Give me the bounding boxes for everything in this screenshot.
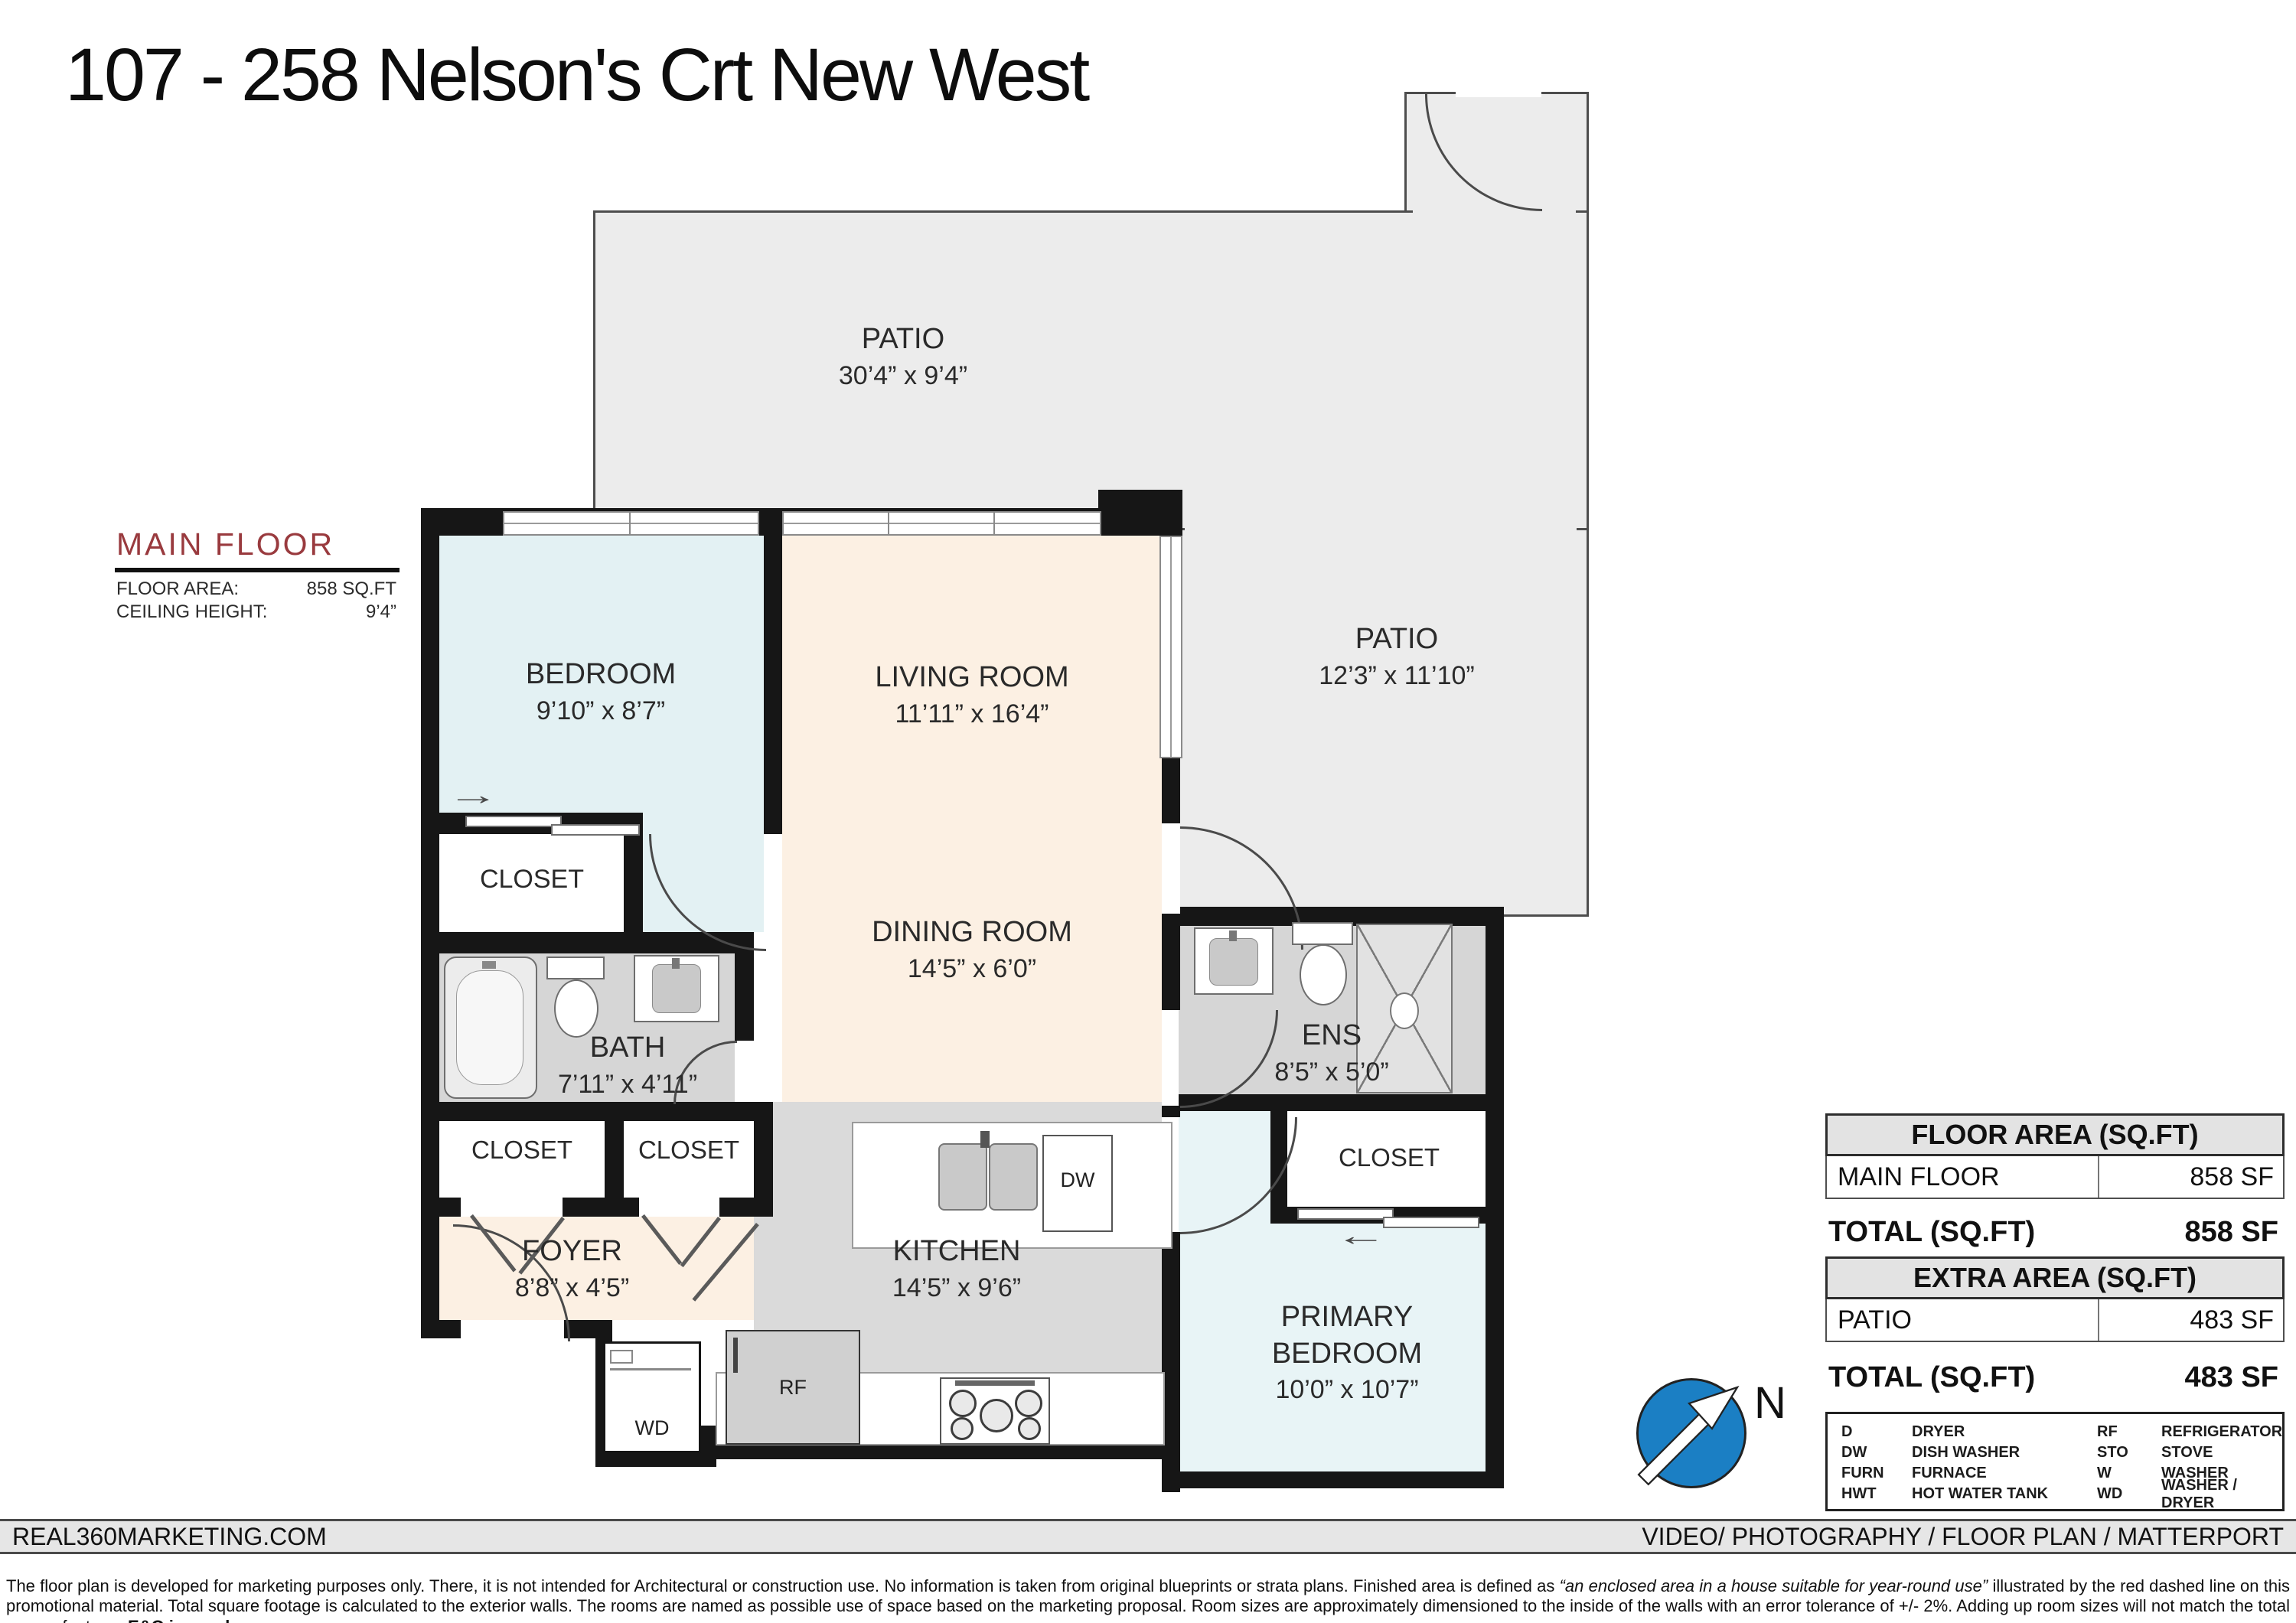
- room-name: PRIMARY: [1281, 1299, 1413, 1336]
- wall: [1179, 1471, 1504, 1488]
- room-name: LIVING ROOM: [875, 660, 1068, 696]
- legend-abbr: FURN: [1841, 1465, 1912, 1482]
- floor-total-row: TOTAL (SQ.FT) 858 SF: [1825, 1209, 2285, 1255]
- island-sink-faucet: [980, 1131, 990, 1148]
- room-name: BATH: [590, 1030, 666, 1067]
- toilet-tank-icon: [1292, 922, 1353, 945]
- bath-label: BATH 7’11” x 4’11”: [501, 1030, 754, 1103]
- total-label: TOTAL (SQ.FT): [1828, 1361, 2035, 1394]
- table-row: PATIO 483 SF: [1825, 1299, 2285, 1342]
- room-name: PATIO: [1355, 621, 1438, 658]
- room-name: KITCHEN: [893, 1234, 1021, 1270]
- toilet-bowl-icon: [554, 979, 598, 1038]
- legend-term: FURNACE: [1912, 1465, 2097, 1482]
- legend-abbr: W: [2097, 1465, 2161, 1482]
- bedroom-label: BEDROOM 9’10” x 8’7”: [459, 657, 742, 729]
- window-divider: [993, 513, 995, 534]
- sliding-door-panel: [551, 824, 640, 836]
- north-label: N: [1754, 1377, 1786, 1429]
- stove-burner: [949, 1390, 977, 1417]
- legend-abbr: HWT: [1841, 1485, 1912, 1503]
- window-divider: [629, 513, 631, 534]
- island-sink-basin: [938, 1143, 987, 1211]
- wall: [719, 1198, 754, 1217]
- toilet-tank-icon: [546, 957, 605, 979]
- sink-faucet: [672, 958, 680, 969]
- legend-abbr: STO: [2097, 1444, 2161, 1462]
- window-mullion: [504, 523, 758, 524]
- floor-area-table-header: FLOOR AREA (SQ.FT): [1825, 1113, 2285, 1156]
- total-value: 858 SF: [2184, 1216, 2278, 1249]
- floor-area-label: FLOOR AREA:: [116, 578, 239, 600]
- room-dims: 14’5” x 6’0”: [908, 951, 1036, 988]
- table-row: MAIN FLOOR 858 SF: [1825, 1156, 2285, 1199]
- row-label: MAIN FLOOR: [1827, 1156, 2099, 1198]
- living-room-window: [782, 511, 1101, 536]
- hall-closet-2-label: CLOSET: [612, 1134, 765, 1165]
- island-sink-basin: [989, 1143, 1038, 1211]
- row-value: 858 SF: [2099, 1156, 2283, 1198]
- sink-basin: [652, 964, 701, 1013]
- bedroom-window: [503, 511, 759, 536]
- patio-door-opening: [1162, 823, 1180, 914]
- refrigerator-icon: RF: [726, 1330, 860, 1445]
- total-value: 483 SF: [2184, 1361, 2278, 1394]
- dishwasher-label: DW: [1061, 1168, 1095, 1192]
- ensuite-sink-icon: [1194, 927, 1274, 995]
- floor-area-row: FLOOR AREA: 858 SQ.FT: [116, 578, 396, 600]
- ceiling-height-value: 9’4”: [366, 601, 396, 623]
- room-dims: 14’5” x 9’6”: [892, 1270, 1021, 1307]
- ensuite-label: ENS 8’5” x 5’0”: [1244, 1018, 1420, 1090]
- north-compass-icon: [1634, 1376, 1749, 1491]
- extra-total-row: TOTAL (SQ.FT) 483 SF: [1825, 1354, 2285, 1400]
- room-dims: 11’11” x 16’4”: [895, 696, 1049, 733]
- toilet-bowl-icon: [1300, 944, 1347, 1005]
- floor-area-value: 858 SQ.FT: [307, 578, 396, 600]
- stove-icon: [940, 1377, 1050, 1445]
- sliding-direction-arrow-icon: ←: [1335, 1220, 1387, 1252]
- sliding-door-panel: [1297, 1208, 1394, 1220]
- wall: [1162, 911, 1180, 1010]
- wall: [1179, 1094, 1504, 1111]
- wall: [421, 1102, 754, 1121]
- room-name: PATIO: [862, 321, 944, 358]
- wall: [421, 932, 754, 953]
- legend-term: HOT WATER TANK: [1912, 1485, 2097, 1503]
- floor-plan-page: 107 - 258 Nelson's Crt New West MAIN FLO…: [0, 0, 2296, 1623]
- legend-box: D DRYER RF REFRIGERATOR DW DISH WASHER S…: [1825, 1412, 2285, 1511]
- footer-services: VIDEO/ PHOTOGRAPHY / FLOOR PLAN / MATTER…: [1642, 1523, 2284, 1551]
- bedroom-closet-label: CLOSET: [452, 863, 612, 896]
- patio-right-label: PATIO 12’3” x 11’10”: [1263, 621, 1531, 694]
- sliding-door-panel: [1383, 1217, 1479, 1228]
- room-dims: 7’11” x 4’11”: [558, 1067, 697, 1103]
- row-label: PATIO: [1827, 1299, 2099, 1341]
- legend-term: STOVE: [2161, 1444, 2282, 1462]
- legend-term: WASHER / DRYER: [2161, 1477, 2282, 1512]
- sink-basin: [1209, 938, 1258, 986]
- patio-seam: [1413, 204, 1576, 220]
- sliding-direction-arrow-icon: →: [447, 779, 499, 811]
- wall: [624, 834, 643, 932]
- window-mullion: [784, 523, 1100, 524]
- stove-controls: [955, 1380, 1035, 1386]
- stove-burner: [980, 1399, 1013, 1432]
- main-floor-heading: MAIN FLOOR: [116, 526, 334, 562]
- wall: [1162, 1106, 1180, 1117]
- dishwasher-icon: DW: [1042, 1135, 1113, 1225]
- disclaimer-text: The floor plan is developed for marketin…: [6, 1576, 2290, 1623]
- stove-burner: [951, 1417, 974, 1440]
- stove-burner: [1018, 1417, 1041, 1440]
- patio-top-area: [593, 210, 1589, 534]
- legend-abbr: D: [1841, 1423, 1912, 1441]
- hall-closet-1-label: CLOSET: [439, 1134, 605, 1165]
- wall: [735, 953, 754, 1041]
- patio-top-label: PATIO 30’4” x 9’4”: [765, 321, 1041, 394]
- legend-term: DISH WASHER: [1912, 1444, 2097, 1462]
- wall: [1162, 754, 1180, 826]
- wall: [421, 1198, 461, 1217]
- sink-faucet: [1229, 930, 1237, 941]
- patio-seam: [1185, 520, 1577, 539]
- kitchen-island: DW: [852, 1122, 1172, 1249]
- bath-sink-icon: [634, 955, 719, 1022]
- room-name: CLOSET: [471, 1134, 572, 1165]
- bathtub-faucet: [482, 961, 496, 969]
- living-room-label: LIVING ROOM 11’11” x 16’4”: [827, 660, 1117, 732]
- washer-dryer-panel: [610, 1350, 633, 1364]
- kitchen-label: KITCHEN 14’5” x 9’6”: [807, 1234, 1106, 1306]
- legend-abbr: DW: [1841, 1444, 1912, 1462]
- legend-term: DRYER: [1912, 1423, 2097, 1441]
- ceiling-height-label: CEILING HEIGHT:: [116, 601, 267, 623]
- room-name: ENS: [1302, 1018, 1362, 1054]
- room-dims: 10’0” x 10’7”: [1275, 1372, 1418, 1409]
- room-dims: 12’3” x 11’10”: [1319, 658, 1475, 695]
- foyer-label: FOYER 8’8” x 4’5”: [452, 1234, 693, 1306]
- refrigerator-label: RF: [779, 1376, 807, 1400]
- primary-bedroom-label: PRIMARY BEDROOM 10’0” x 10’7”: [1202, 1299, 1492, 1409]
- room-name: BEDROOM: [1272, 1336, 1422, 1373]
- window-mullion: [1170, 537, 1172, 757]
- room-name: DINING ROOM: [872, 914, 1072, 951]
- primary-closet-label: CLOSET: [1293, 1142, 1485, 1173]
- total-label: TOTAL (SQ.FT): [1828, 1216, 2035, 1249]
- legend-abbr: WD: [2097, 1485, 2161, 1503]
- wall: [1162, 1232, 1180, 1492]
- wall: [1098, 490, 1182, 536]
- washer-dryer-icon: WD: [603, 1341, 701, 1453]
- sliding-door-panel: [465, 816, 562, 827]
- washer-dryer-label: WD: [635, 1416, 670, 1440]
- room-dims: 30’4” x 9’4”: [839, 358, 967, 395]
- ceiling-height-row: CEILING HEIGHT: 9’4”: [116, 601, 396, 623]
- dining-room-label: DINING ROOM 14’5” x 6’0”: [827, 914, 1117, 987]
- legend-term: REFRIGERATOR: [2161, 1423, 2282, 1441]
- room-dims: 8’8” x 4’5”: [515, 1270, 629, 1307]
- dishwasher-kick: [1042, 1220, 1113, 1232]
- room-name: CLOSET: [1339, 1142, 1440, 1173]
- wall: [563, 1198, 639, 1217]
- room-name: BEDROOM: [526, 657, 676, 693]
- room-name: FOYER: [522, 1234, 622, 1270]
- extra-area-table-header: EXTRA AREA (SQ.FT): [1825, 1256, 2285, 1299]
- washer-dryer-lid-line: [610, 1368, 691, 1370]
- room-name: CLOSET: [480, 863, 584, 896]
- room-dims: 8’5” x 5’0”: [1274, 1054, 1388, 1091]
- page-title: 107 - 258 Nelson's Crt New West: [65, 32, 1088, 118]
- living-room-side-window: [1159, 536, 1182, 758]
- footer-bar: REAL360MARKETING.COM VIDEO/ PHOTOGRAPHY …: [0, 1519, 2296, 1554]
- room-name: CLOSET: [638, 1134, 739, 1165]
- heading-underline: [115, 568, 400, 572]
- footer-website: REAL360MARKETING.COM: [12, 1523, 327, 1551]
- refrigerator-handle: [733, 1338, 738, 1373]
- row-value: 483 SF: [2099, 1299, 2283, 1341]
- stove-burner: [1015, 1390, 1042, 1417]
- room-dims: 9’10” x 8’7”: [536, 693, 665, 730]
- legend-abbr: RF: [2097, 1423, 2161, 1441]
- living-dining-floor: [782, 536, 1162, 1111]
- wall: [764, 536, 782, 834]
- window-divider: [888, 513, 889, 534]
